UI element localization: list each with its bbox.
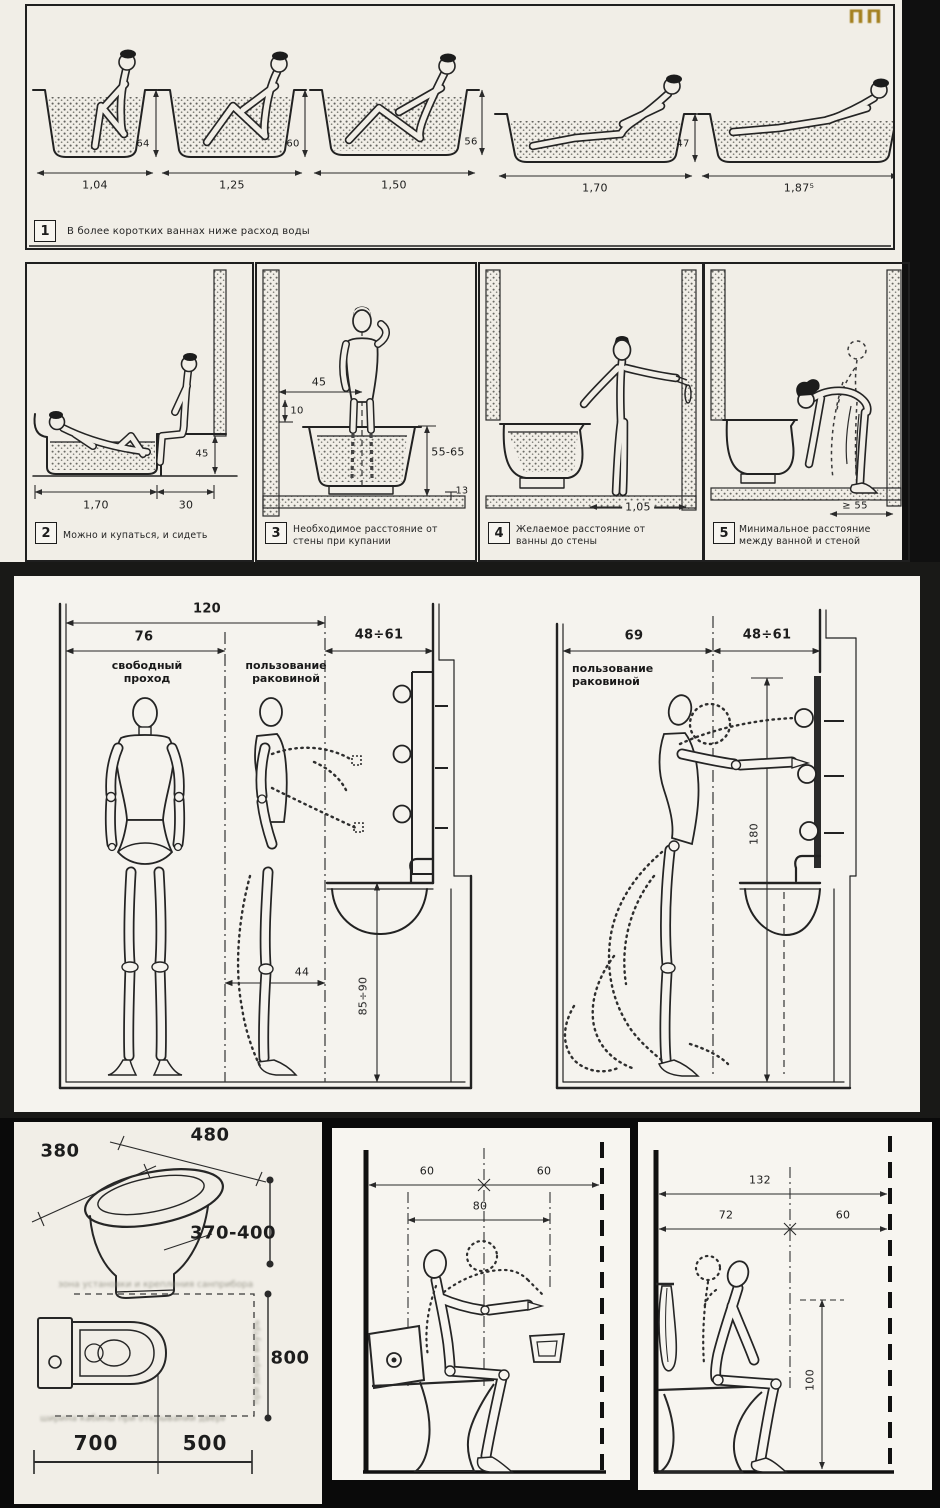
dim-min-55: ≥ 55 [839,501,870,512]
dim-370-400: 370-400 [190,1223,276,1244]
sink-ergonomics-sheet: 120 76 48÷61 свободный проход пользовани… [14,576,920,1112]
dim-tub4-height: 47 [676,139,689,150]
dim-tub3-height: 56 [464,137,477,148]
dim-500: 500 [183,1431,228,1455]
dim-800: 800 [270,1348,309,1369]
dim-13: 13 [456,486,469,497]
dim-120: 120 [193,602,221,617]
panel-1-bathtub-lengths: 1,04 1,25 1,50 1,70 1,87⁵ 64 60 56 47 1 … [25,4,895,250]
dim-180: 180 [748,823,761,845]
panel-4-number: 4 [488,522,510,544]
dim-tub4-length: 1,70 [582,182,608,195]
dim-69: 69 [625,629,644,644]
dim-length: 1,70 [83,499,109,512]
panel-5-minimum-distance: ≥ 55 5 Минимальное расстояние между ванн… [703,262,910,562]
illegible-note-side: при двери внутрь [252,1320,262,1405]
panel-4-caption: Желаемое расстояние от ванны до стены [516,524,676,547]
dim-tub3-length: 1,50 [381,179,407,192]
dim-48-61-right: 48÷61 [743,628,792,643]
dim-85-90: 85÷90 [357,977,370,1016]
panel-5-caption: Минимальное расстояние между ванной и ст… [739,524,899,547]
panel-2-caption: Можно и купаться, и сидеть [63,530,243,542]
toilet-clearance-panel: 132 72 60 100 [638,1122,932,1490]
panel-4-drawing [480,264,702,560]
scanned-ergonomics-page: ПП [0,0,940,1508]
illegible-note-bottom: ширина кабины при открывании двери наруж… [40,1414,225,1424]
dim-60-left: 60 [420,1165,435,1178]
toilet-clearance-drawing [638,1122,932,1490]
dim-55-65: 55-65 [431,446,464,459]
panel-2-number: 2 [35,522,57,544]
dim-100: 100 [804,1369,817,1391]
panel-1-caption: В более коротких ваннах ниже расход воды [67,226,387,238]
dim-10: 10 [290,406,303,417]
dim-44: 44 [295,966,310,979]
dim-tub2-height: 60 [286,139,299,150]
bathtub-lengths-drawing [27,6,893,248]
dim-72: 72 [719,1209,734,1222]
label-sink-use-left: пользование раковиной [236,659,336,685]
dim-700: 700 [74,1431,119,1455]
dim-105: 1,05 [622,501,654,514]
toilet-dimensions-drawing [14,1122,322,1504]
panel-1-number: 1 [34,220,56,242]
dim-48-61-left: 48÷61 [355,628,404,643]
dim-132: 132 [749,1174,771,1187]
panel-3-number: 3 [265,522,287,544]
panel-5-drawing [705,264,908,560]
dim-45: 45 [312,376,327,389]
dim-480: 480 [190,1125,229,1146]
dim-height: 45 [195,449,208,460]
dim-80: 80 [473,1200,488,1213]
dim-tub1-height: 64 [136,139,149,150]
panel-5-number: 5 [713,522,735,544]
dim-tub1-length: 1,04 [82,179,108,192]
dim-60: 60 [836,1209,851,1222]
label-free-passage: свободный проход [105,659,189,685]
label-sink-use-right: пользование раковиной [572,662,672,688]
dim-seat: 30 [179,499,194,512]
dim-60-right: 60 [537,1165,552,1178]
toilet-reach-panel: 60 60 80 [332,1128,630,1480]
toilet-dimensions-panel: 380 480 370-400 800 700 500 зона установ… [14,1122,322,1504]
illegible-note-top: зона установки и крепления санприбора [58,1280,253,1290]
dim-380: 380 [40,1141,79,1162]
panel-2-drawing [27,264,252,560]
dim-tub5-length: 1,87⁵ [784,182,814,195]
panel-2-bathe-and-sit: 1,70 30 45 2 Можно и купаться, и сидеть [25,262,254,562]
dim-tub2-length: 1,25 [219,179,245,192]
toilet-reach-drawing [332,1128,630,1480]
panel-3-wall-distance-bathing: 45 10 55-65 13 3 Необходимое расстояние … [255,262,477,562]
panel-3-caption: Необходимое расстояние от стены при купа… [293,524,465,547]
dim-76: 76 [135,630,154,645]
sink-ergonomics-drawing [14,576,920,1112]
panel-4-desired-distance: 1,05 4 Желаемое расстояние от ванны до с… [478,262,704,562]
